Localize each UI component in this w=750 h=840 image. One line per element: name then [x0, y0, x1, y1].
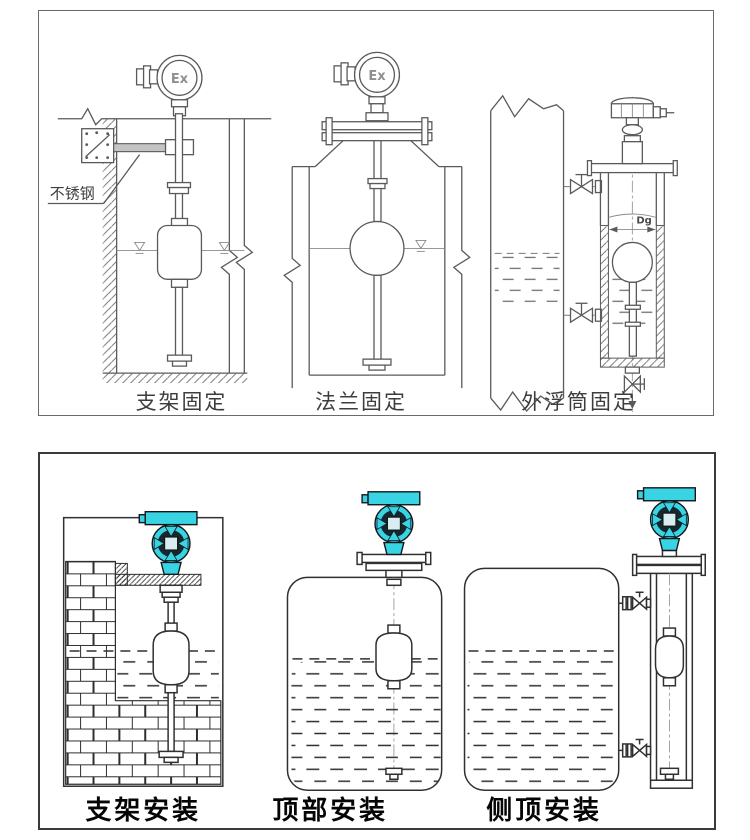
caption-bracket-installation: 支架安装 — [86, 796, 201, 826]
chamber-flange — [636, 556, 704, 564]
chamber-flange — [590, 164, 674, 173]
water — [468, 653, 616, 788]
drawing-top-installation — [287, 492, 441, 790]
drawing-external-chamber-fixing: Dg — [491, 96, 678, 412]
teal-transmitter-middle — [362, 492, 420, 555]
tank-liquid — [495, 256, 560, 302]
stainless-steel-label: 不锈钢 — [50, 185, 95, 203]
bottom-panel-installation-methods: 支架安装 顶部安装 — [38, 452, 716, 830]
tank-wall-break — [284, 167, 300, 388]
caption-bracket-fixing: 支架固定 — [136, 390, 228, 414]
tank-wall-break — [221, 119, 237, 373]
water — [291, 661, 440, 788]
drawing-flange-fixing — [284, 52, 470, 388]
chamber-wall — [600, 225, 608, 358]
bracket-arm — [114, 144, 168, 152]
top-panel-fixing-methods: 不锈钢 支架固定 — [38, 10, 714, 416]
top-surface-line — [58, 109, 271, 125]
tank-top-break — [491, 96, 564, 117]
float — [153, 631, 189, 685]
float — [158, 225, 202, 279]
sensor-rod — [175, 114, 182, 226]
ex-head-left — [137, 55, 202, 115]
lower-pipe-union — [619, 739, 651, 756]
flange-plate — [322, 122, 432, 130]
caption-side-top-installation: 侧顶安装 — [486, 796, 601, 826]
top-panel-drawing: 不锈钢 支架固定 — [39, 11, 713, 415]
ground-hatch — [103, 373, 248, 383]
rod-end-stop — [159, 751, 183, 757]
sensor-rod — [629, 282, 636, 356]
rod-end-stop — [660, 768, 678, 774]
rod-clamp — [160, 585, 182, 592]
rod-end-stop — [363, 359, 391, 365]
cable-connector — [653, 107, 660, 118]
ball-float — [612, 242, 652, 282]
diameter-label: Dg — [636, 215, 651, 226]
caption-top-installation: 顶部安装 — [273, 796, 388, 826]
drawing-bracket-fixing: 不锈钢 — [48, 55, 271, 383]
chamber-bottom — [600, 358, 664, 367]
support-platform — [115, 574, 201, 585]
lower-isolation-valve — [571, 303, 593, 322]
float — [656, 636, 684, 678]
rod-end-stop — [168, 355, 192, 361]
mounting-flange — [360, 554, 428, 562]
ex-head-middle — [334, 52, 399, 112]
teal-transmitter-left — [139, 512, 197, 575]
ball-float — [350, 221, 404, 275]
rod-end-stop — [386, 768, 402, 774]
drawing-bracket-installation — [64, 512, 223, 787]
float-level-gauge-installation-figure: Ex — [0, 0, 750, 840]
drawing-side-top-installation — [465, 488, 706, 790]
float — [376, 633, 412, 681]
caption-flange-fixing: 法兰固定 — [315, 390, 407, 414]
upper-pipe-union — [619, 592, 651, 609]
caption-external-chamber-fixing: 外浮筒固定 — [521, 390, 636, 414]
teal-transmitter-right — [638, 488, 696, 551]
upper-isolation-valve — [571, 175, 593, 194]
bottom-panel-drawing: 支架安装 顶部安装 — [40, 454, 714, 828]
